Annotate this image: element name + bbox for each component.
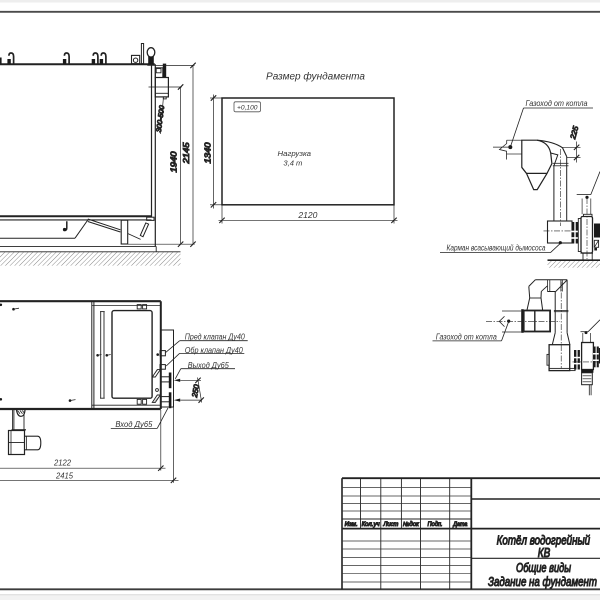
svg-text:1340: 1340 (204, 142, 213, 164)
svg-text:Пред клапан Ду40: Пред клапан Ду40 (185, 332, 245, 341)
svg-text:Лист: Лист (382, 522, 398, 528)
svg-text:Карман всасывающий дымососа: Карман всасывающий дымососа (447, 244, 546, 253)
svg-text:Газоход от котла: Газоход от котла (436, 333, 497, 342)
svg-text:Размер фундамента: Размер фундамента (266, 71, 365, 83)
svg-text:КВ: КВ (538, 546, 551, 560)
svg-text:Вход Ду65: Вход Ду65 (115, 420, 153, 429)
svg-text:№док: №док (403, 521, 420, 528)
svg-text:Дата: Дата (452, 522, 467, 528)
svg-text:+0,100: +0,100 (237, 105, 258, 112)
svg-text:2145: 2145 (182, 142, 191, 165)
svg-text:Подп.: Подп. (428, 522, 443, 528)
svg-text:2415: 2415 (55, 472, 73, 481)
svg-text:3,4 т: 3,4 т (283, 159, 302, 168)
svg-text:Газоход от котла: Газоход от котла (526, 99, 588, 108)
svg-text:1940: 1940 (169, 151, 178, 173)
svg-text:Общие виды: Общие виды (516, 561, 571, 575)
svg-text:2122: 2122 (53, 459, 71, 468)
svg-text:2120: 2120 (297, 211, 318, 220)
svg-text:Кол.уч: Кол.уч (362, 522, 380, 528)
svg-text:Нагрузка: Нагрузка (278, 149, 312, 158)
svg-text:Задание на фундамент: Задание на фундамент (488, 575, 597, 589)
svg-text:Изм.: Изм. (345, 522, 358, 528)
